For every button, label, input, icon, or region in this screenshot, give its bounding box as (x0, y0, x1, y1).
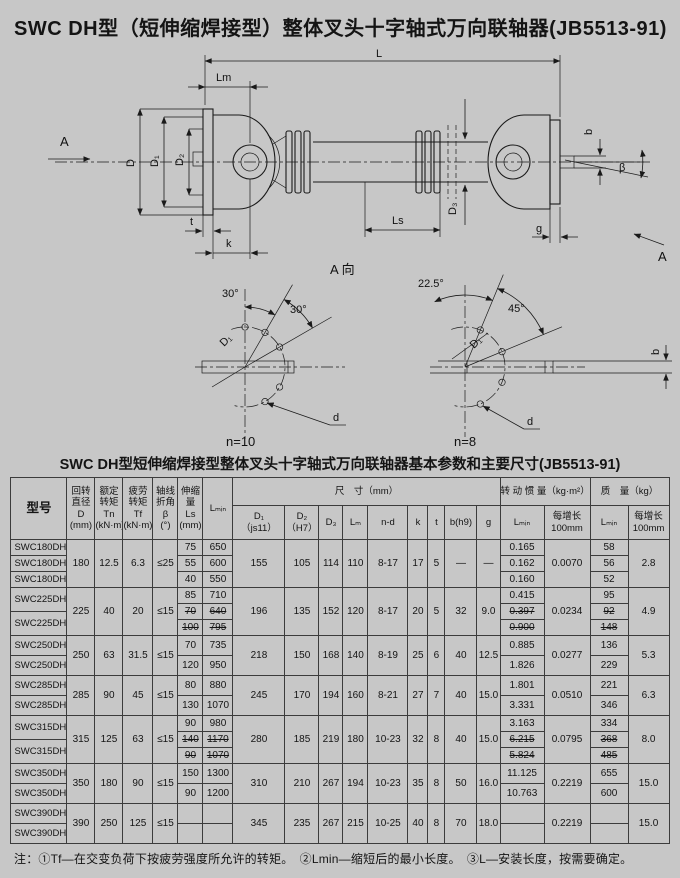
spec-table-body: SWC180DH118012.56.3≤25756501551051141108… (11, 540, 669, 844)
right-detail-count: n=8 (454, 434, 476, 449)
table-cell (500, 824, 544, 844)
table-cell: 650 (203, 540, 233, 556)
left-detail-angle1: 30° (222, 288, 239, 300)
model-cell: SWC315DH2 (11, 740, 67, 764)
table-row: SWC180DH118012.56.3≤25756501551051141108… (11, 540, 669, 556)
table-cell: 70 (445, 804, 477, 844)
col-header-Lmin: Lₘᵢₙ (203, 478, 233, 540)
table-cell: ≤15 (153, 804, 178, 844)
model-cell: SWC285DH1 (11, 676, 67, 696)
table-cell: — (477, 540, 500, 588)
model-cell: SWC225DH2 (11, 612, 67, 636)
col-header-D1: D₁ （js11） (233, 506, 285, 540)
table-row: SWC350DH135018090≤1515013003102102671941… (11, 764, 669, 784)
model-cell: SWC250DH1 (11, 636, 67, 656)
table-cell: 150 (285, 636, 319, 676)
table-row: SWC250DH12506331.5≤15707352181501681408-… (11, 636, 669, 656)
table-cell: 40 (445, 636, 477, 676)
col-header-Ls: 伸缩 量 Ls (mm) (178, 478, 203, 540)
table-cell: 10.763 (500, 784, 544, 804)
table-cell: 8-21 (368, 676, 408, 716)
table-cell: 110 (343, 540, 368, 588)
table-cell: 170 (285, 676, 319, 716)
table-cell: 194 (319, 676, 343, 716)
table-cell: 27 (408, 676, 428, 716)
table-cell: 795 (203, 620, 233, 636)
table-cell: 1.801 (500, 676, 544, 696)
table-cell: 0.160 (500, 572, 544, 588)
dim-label-Ls: Ls (392, 215, 404, 227)
table-cell: 120 (343, 588, 368, 636)
col-header-model: 型号 (11, 478, 67, 540)
left-detail-dia-label: D₁ (218, 332, 235, 349)
table-cell: 63 (123, 716, 153, 764)
table-cell: 0.0510 (544, 676, 590, 716)
table-cell: 12.5 (477, 636, 500, 676)
table-cell: 55 (178, 556, 203, 572)
table-cell: 35 (408, 764, 428, 804)
right-detail-angle1: 22.5° (418, 278, 444, 290)
table-cell: 8 (428, 764, 445, 804)
table-cell: 114 (319, 540, 343, 588)
table-cell: 40 (95, 588, 123, 636)
table-cell: 0.0070 (544, 540, 590, 588)
spec-table: 型号 回转 直径 D (mm) 额定 转矩 Tn (kN·m) 疲劳 转矩 Tf… (10, 477, 669, 844)
left-key (193, 152, 203, 166)
table-cell: 5.3 (628, 636, 669, 676)
dim-label-D: D (125, 159, 137, 167)
model-cell: SWC180DH1 (11, 540, 67, 556)
table-cell: 1070 (203, 748, 233, 764)
table-cell: 40 (408, 804, 428, 844)
table-cell: 0.885 (500, 636, 544, 656)
col-header-g: g (477, 506, 500, 540)
table-cell: ≤15 (153, 764, 178, 804)
col-header-Tn: 额定 转矩 Tn (kN·m) (95, 478, 123, 540)
table-cell: 160 (343, 676, 368, 716)
table-cell: 4.9 (628, 588, 669, 636)
right-detail-hole-label: d (527, 416, 533, 428)
table-cell: 390 (67, 804, 95, 844)
table-cell: 125 (95, 716, 123, 764)
table-cell: 92 (590, 604, 628, 620)
table-cell: 8 (428, 804, 445, 844)
table-cell: 600 (590, 784, 628, 804)
table-cell: 210 (285, 764, 319, 804)
table-cell: 120 (178, 656, 203, 676)
dim-label-beta: β (619, 162, 625, 174)
table-cell: 52 (590, 572, 628, 588)
table-cell: 346 (590, 696, 628, 716)
table-cell: 180 (67, 540, 95, 588)
table-cell (590, 804, 628, 824)
table-cell: 0.0795 (544, 716, 590, 764)
table-cell: 70 (178, 604, 203, 620)
table-cell: 485 (590, 748, 628, 764)
dim-label-Lm: Lm (216, 72, 231, 84)
col-header-mass-Lmin: Lₘᵢₙ (590, 506, 628, 540)
table-cell: 310 (233, 764, 285, 804)
table-cell: — (445, 540, 477, 588)
table-cell: 9.0 (477, 588, 500, 636)
table-cell: 5 (428, 588, 445, 636)
table-cell: 56 (590, 556, 628, 572)
table-cell: 80 (178, 676, 203, 696)
table-cell: 0.2219 (544, 764, 590, 804)
table-cell: 70 (178, 636, 203, 656)
col-header-nd: n-d (368, 506, 408, 540)
table-cell: 8-17 (368, 540, 408, 588)
left-detail-hole-label: d (333, 412, 339, 424)
table-cell: 95 (590, 588, 628, 604)
col-header-t: t (428, 506, 445, 540)
table-cell: 8-19 (368, 636, 408, 676)
table-cell: 148 (590, 620, 628, 636)
table-cell: 75 (178, 540, 203, 556)
col-header-inertia-Lmin: Lₘᵢₙ (500, 506, 544, 540)
table-cell: 16.0 (477, 764, 500, 804)
table-cell: 40 (178, 572, 203, 588)
right-detail-angle2: 45° (508, 303, 525, 315)
table-cell: 140 (178, 732, 203, 748)
table-cell: 6.215 (500, 732, 544, 748)
col-header-D3: D₃ (319, 506, 343, 540)
table-cell: 50 (445, 764, 477, 804)
table-cell: 45 (123, 676, 153, 716)
table-cell: 40 (445, 676, 477, 716)
col-header-Tf: 疲劳 转矩 Tf (kN·m) (123, 478, 153, 540)
model-cell: SWC315DH1 (11, 716, 67, 740)
table-cell: 1.826 (500, 656, 544, 676)
table-cell: 225 (67, 588, 95, 636)
table-cell: 150 (178, 764, 203, 784)
model-cell: SWC250DH2 (11, 656, 67, 676)
model-cell: SWC390DH1 (11, 804, 67, 824)
table-cell: 194 (343, 764, 368, 804)
table-cell: 31.5 (123, 636, 153, 676)
table-cell: 90 (178, 784, 203, 804)
table-cell: 90 (123, 764, 153, 804)
table-cell: 6 (428, 636, 445, 676)
col-header-D: 回转 直径 D (mm) (67, 478, 95, 540)
table-cell: 280 (233, 716, 285, 764)
table-cell: 135 (285, 588, 319, 636)
table-cell: 105 (285, 540, 319, 588)
table-cell: 285 (67, 676, 95, 716)
table-cell: 5.824 (500, 748, 544, 764)
table-cell: 90 (95, 676, 123, 716)
model-cell: SWC180DH2 (11, 556, 67, 572)
col-header-inertia-group: 转 动 惯 量（kg·m²） (500, 478, 590, 506)
table-cell: 235 (285, 804, 319, 844)
dim-label-L: L (376, 48, 382, 60)
table-cell: 0.165 (500, 540, 544, 556)
table-row: SWC225DH12254020≤15857101961351521208-17… (11, 588, 669, 596)
section-arrow-label-left: A (60, 134, 69, 149)
table-cell: ≤15 (153, 636, 178, 676)
table-cell: 334 (590, 716, 628, 732)
table-cell: 152 (319, 588, 343, 636)
table-cell: 880 (203, 676, 233, 696)
table-cell: 8 (428, 716, 445, 764)
right-detail-dia-label: D₁ (468, 334, 485, 351)
table-cell: 1070 (203, 696, 233, 716)
table-cell: 155 (233, 540, 285, 588)
table-cell: 0.2219 (544, 804, 590, 844)
table-cell: 1170 (203, 732, 233, 748)
table-cell: 3.331 (500, 696, 544, 716)
table-cell: 25 (408, 636, 428, 676)
col-header-b: b(h9) (445, 506, 477, 540)
table-cell: 180 (95, 764, 123, 804)
table-cell: 12.5 (95, 540, 123, 588)
table-cell: 0.397 (500, 604, 544, 620)
table-cell: 950 (203, 656, 233, 676)
table-cell (500, 804, 544, 824)
table-cell: 218 (233, 636, 285, 676)
table-cell: ≤15 (153, 588, 178, 636)
col-header-size-group: 尺 寸（mm） (233, 478, 500, 506)
table-cell: 10-25 (368, 804, 408, 844)
col-header-beta: 轴线 折角 β (°) (153, 478, 178, 540)
table-cell: 1300 (203, 764, 233, 784)
table-cell: 0.0234 (544, 588, 590, 636)
table-cell: ≤15 (153, 716, 178, 764)
table-cell: 350 (67, 764, 95, 804)
table-cell: 32 (408, 716, 428, 764)
col-header-inertia-per100: 每增长 100mm (544, 506, 590, 540)
document-page: SWC DH型（短伸缩焊接型）整体叉头十字轴式万向联轴器(JB5513-91) (0, 0, 680, 878)
col-header-k: k (408, 506, 428, 540)
left-detail-count: n=10 (226, 434, 255, 449)
footnote: 注：①Tf—在交变负荷下按疲劳强度所允许的转矩。 ②Lmin—缩短后的最小长度。… (0, 844, 680, 867)
dim-label-b: b (583, 129, 595, 135)
table-cell: 0.415 (500, 588, 544, 604)
table-title: SWC DH型短伸缩焊接型整体叉头十字轴式万向联轴器基本参数和主要尺寸(JB55… (0, 453, 680, 474)
table-cell: 980 (203, 716, 233, 732)
table-cell: 1200 (203, 784, 233, 804)
table-cell: 345 (233, 804, 285, 844)
table-cell: 7 (428, 676, 445, 716)
dim-label-k: k (226, 238, 232, 250)
dim-label-g: g (536, 223, 542, 235)
table-cell: 10-23 (368, 716, 408, 764)
table-cell: 267 (319, 764, 343, 804)
model-cell: SWC180DH3 (11, 572, 67, 588)
table-cell: 58 (590, 540, 628, 556)
model-cell: SWC350DH1 (11, 764, 67, 784)
model-cell: SWC390DH2 (11, 824, 67, 844)
table-cell: 15.0 (628, 764, 669, 804)
table-cell: 250 (67, 636, 95, 676)
table-row: SWC315DH131512563≤159098028018521918010-… (11, 716, 669, 724)
table-cell: 20 (123, 588, 153, 636)
table-cell: 100 (178, 620, 203, 636)
table-cell: 32 (445, 588, 477, 636)
table-cell: 221 (590, 676, 628, 696)
dim-label-D3: D₃ (447, 203, 459, 215)
table-cell: 0.0277 (544, 636, 590, 676)
section-arrow-label-right: A (658, 249, 667, 264)
table-cell: 140 (343, 636, 368, 676)
table-cell (203, 804, 233, 824)
view-label: A 向 (330, 262, 355, 277)
table-cell: 40 (445, 716, 477, 764)
table-cell: 3.163 (500, 716, 544, 732)
table-cell: 125 (123, 804, 153, 844)
table-cell: 710 (203, 588, 233, 604)
page-title: SWC DH型（短伸缩焊接型）整体叉头十字轴式万向联轴器(JB5513-91) (0, 0, 680, 43)
table-cell: 8-17 (368, 588, 408, 636)
header-row-top: 型号 回转 直径 D (mm) 额定 转矩 Tn (kN·m) 疲劳 转矩 Tf… (11, 478, 669, 506)
table-cell: 11.125 (500, 764, 544, 784)
table-cell: 15.0 (477, 676, 500, 716)
model-cell: SWC225DH1 (11, 588, 67, 612)
table-cell: 8.0 (628, 716, 669, 764)
table-cell: 5 (428, 540, 445, 588)
table-cell: 20 (408, 588, 428, 636)
table-cell: 368 (590, 732, 628, 748)
table-cell: 15.0 (477, 716, 500, 764)
table-cell: 130 (178, 696, 203, 716)
table-cell: 550 (203, 572, 233, 588)
table-cell: 219 (319, 716, 343, 764)
table-cell: 90 (178, 716, 203, 732)
table-cell: ≤15 (153, 676, 178, 716)
table-cell: 735 (203, 636, 233, 656)
table-cell: 2.8 (628, 540, 669, 588)
table-cell (178, 804, 203, 824)
left-detail-angle2: 30° (290, 304, 307, 316)
table-cell: 15.0 (628, 804, 669, 844)
table-cell: 640 (203, 604, 233, 620)
table-cell: 90 (178, 748, 203, 764)
table-cell: 168 (319, 636, 343, 676)
model-cell: SWC350DH2 (11, 784, 67, 804)
table-cell: 600 (203, 556, 233, 572)
table-row: SWC390DH1390250125≤1534523526721510-2540… (11, 804, 669, 824)
table-cell: 0.900 (500, 620, 544, 636)
table-cell: 196 (233, 588, 285, 636)
table-cell: 215 (343, 804, 368, 844)
table-cell: 18.0 (477, 804, 500, 844)
table-cell: ≤25 (153, 540, 178, 588)
table-cell: 6.3 (628, 676, 669, 716)
table-cell (178, 824, 203, 844)
table-cell: 185 (285, 716, 319, 764)
table-cell: 10-23 (368, 764, 408, 804)
table-cell: 245 (233, 676, 285, 716)
table-cell: 85 (178, 588, 203, 604)
table-cell: 180 (343, 716, 368, 764)
dim-label-t: t (190, 216, 193, 228)
table-cell: 250 (95, 804, 123, 844)
right-detail-b-label: b (650, 349, 662, 355)
table-cell: 136 (590, 636, 628, 656)
table-cell: 6.3 (123, 540, 153, 588)
dim-label-D2: D₂ (174, 154, 186, 166)
col-header-mass-group: 质 量（kg） (590, 478, 669, 506)
table-cell (590, 824, 628, 844)
technical-drawing: β b g L Lm D D₁ D₂ (0, 43, 680, 451)
col-header-mass-per100: 每增长 100mm (628, 506, 669, 540)
table-cell (203, 824, 233, 844)
dim-label-D1: D₁ (149, 155, 161, 167)
table-row: SWC285DH12859045≤15808802451701941608-21… (11, 676, 669, 696)
col-header-Lm: Lₘ (343, 506, 368, 540)
table-cell: 63 (95, 636, 123, 676)
table-cell: 17 (408, 540, 428, 588)
table-cell: 229 (590, 656, 628, 676)
table-cell: 267 (319, 804, 343, 844)
table-cell: 315 (67, 716, 95, 764)
table-cell: 0.162 (500, 556, 544, 572)
model-cell: SWC285DH2 (11, 696, 67, 716)
table-cell: 655 (590, 764, 628, 784)
col-header-D2: D₂ （H7） (285, 506, 319, 540)
